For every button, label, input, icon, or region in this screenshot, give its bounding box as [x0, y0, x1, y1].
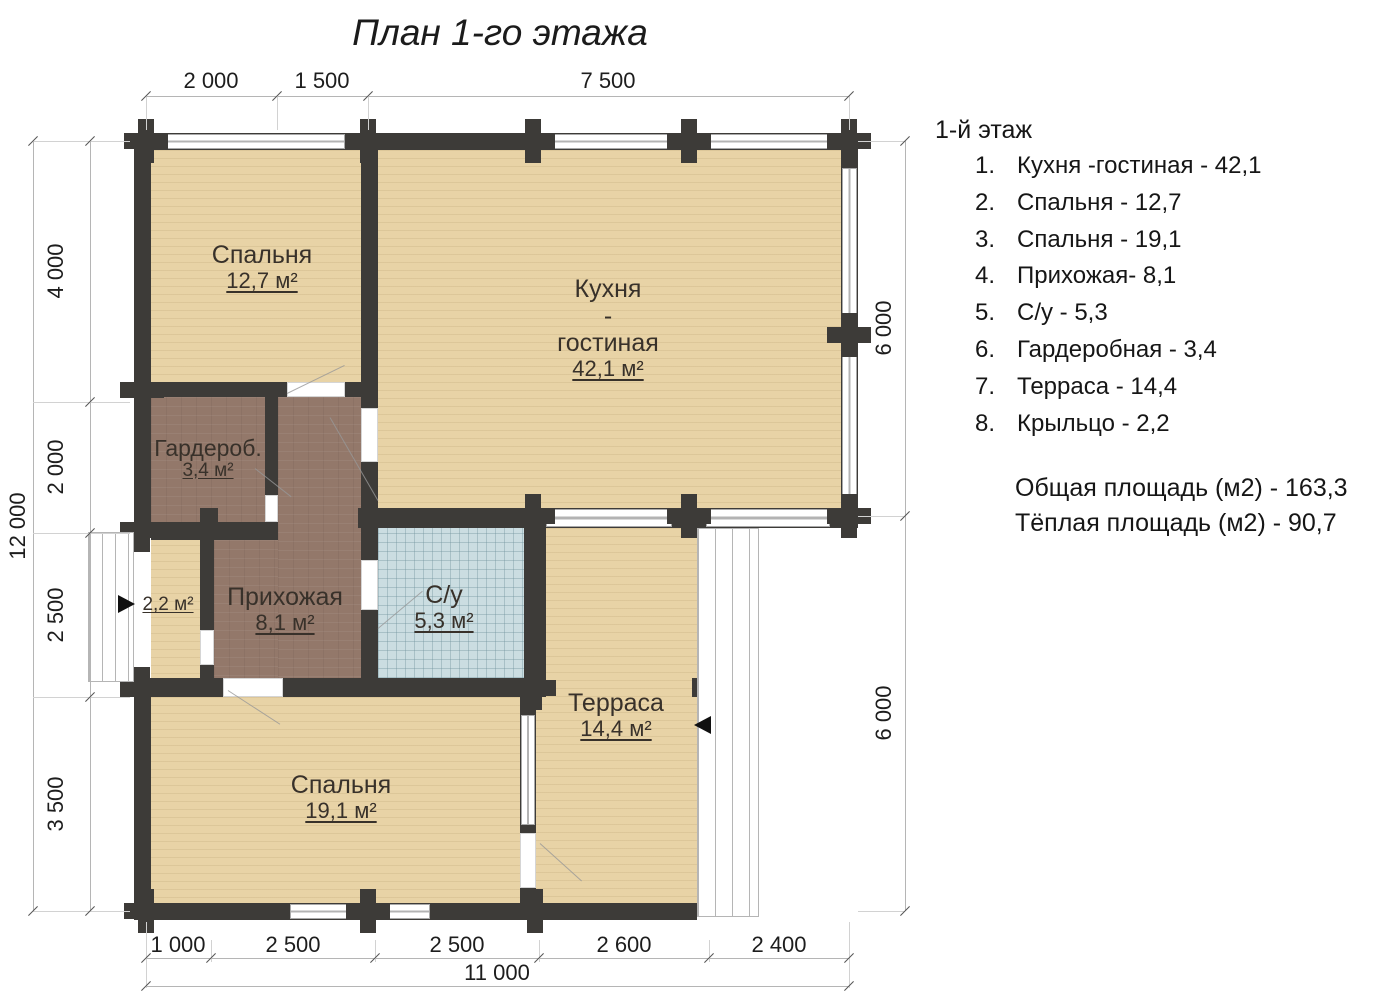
dimension-label: 12 000 — [5, 492, 31, 559]
window-kitchen-terrace-1 — [546, 509, 672, 527]
room-label-bedroom1: Спальня 12,7 м² — [182, 242, 342, 293]
dimension-line — [146, 986, 849, 987]
log-joint-icon — [124, 903, 168, 919]
extension-line — [849, 96, 850, 130]
log-joint-icon — [667, 508, 711, 524]
extension-line — [858, 911, 905, 912]
legend-item-number: 7. — [975, 373, 1001, 401]
legend-item-number: 2. — [975, 189, 1001, 217]
extension-line — [146, 96, 147, 130]
legend-item: 4. Прихожая- 8,1 — [975, 262, 1176, 290]
room-area: 3,4 м² — [128, 461, 288, 482]
window-kitchen-east-1 — [842, 168, 857, 318]
legend-item: 5. С/у - 5,3 — [975, 299, 1108, 327]
wall-post-hall — [200, 508, 218, 540]
floor-plan-sheet: План 1-го этажа — [0, 0, 1391, 1000]
extension-line — [33, 402, 130, 403]
extension-line — [368, 96, 369, 130]
legend-item-number: 6. — [975, 336, 1001, 364]
room-name: Терраса — [536, 690, 696, 717]
room-label-kitchen: Кухня - гостиная 42,1 м² — [528, 276, 688, 381]
legend-item: 2. Спальня - 12,7 — [975, 189, 1181, 217]
room-area: 8,1 м² — [205, 611, 365, 635]
room-name: Спальня — [261, 772, 421, 799]
log-joint-icon — [827, 327, 871, 343]
wall-terrace-post-south — [682, 903, 697, 917]
page-title: План 1-го этажа — [330, 12, 670, 54]
dimension-line — [33, 141, 34, 911]
legend-item-number: 1. — [975, 152, 1001, 180]
room-name: - — [528, 303, 688, 330]
warm-area-text: Тёплая площадь (м2) - 90,7 — [1015, 509, 1337, 538]
door-terrace-bedroom2 — [520, 833, 536, 888]
log-joint-icon — [120, 681, 164, 697]
dimension-label: 2 500 — [429, 932, 484, 958]
room-label-wardrobe: Гардероб. 3,4 м² — [128, 436, 288, 481]
dimension-label: 11 000 — [464, 960, 530, 986]
room-name: Гардероб. — [128, 436, 288, 461]
legend-item-text: Терраса - 14,4 — [1017, 373, 1177, 401]
extension-line — [858, 141, 905, 142]
legend-item-text: Кухня -гостиная - 42,1 — [1017, 152, 1262, 180]
door-porch-hallway — [200, 630, 214, 665]
dimension-label: 2 500 — [43, 587, 69, 642]
legend-item-text: Спальня - 19,1 — [1017, 226, 1181, 254]
room-name: Спальня — [182, 242, 342, 269]
log-joint-icon — [513, 903, 557, 919]
dimension-label: 1 500 — [294, 68, 349, 94]
dimension-label: 6 000 — [871, 685, 897, 740]
extension-line — [33, 697, 130, 698]
log-joint-icon — [120, 382, 164, 398]
log-joint-icon — [346, 133, 390, 149]
legend-item: 8. Крыльцо - 2,2 — [975, 410, 1170, 438]
room-label-terrace: Терраса 14,4 м² — [536, 690, 696, 741]
legend-heading: 1-й этаж — [935, 116, 1032, 145]
room-label-hallway: Прихожая 8,1 м² — [205, 584, 365, 635]
legend-item-text: Крыльцо - 2,2 — [1017, 410, 1170, 438]
extension-line — [211, 940, 212, 962]
legend-item-number: 5. — [975, 299, 1001, 327]
room-area: 2,2 м² — [138, 595, 198, 616]
room-name: С/у — [364, 582, 524, 609]
legend-item-text: Прихожая- 8,1 — [1017, 262, 1176, 290]
legend-item: 6. Гардеробная - 3,4 — [975, 336, 1217, 364]
legend-item-text: Гардеробная - 3,4 — [1017, 336, 1217, 364]
legend-item: 3. Спальня - 19,1 — [975, 226, 1181, 254]
window-kitchen-east-2 — [842, 352, 857, 498]
log-joint-icon — [124, 133, 168, 149]
room-area: 5,3 м² — [364, 609, 524, 633]
window-bedroom2-east — [521, 715, 535, 825]
room-area: 42,1 м² — [528, 357, 688, 381]
legend-item-number: 8. — [975, 410, 1001, 438]
extension-line — [33, 533, 130, 534]
entry-arrow-icon — [694, 716, 711, 734]
dimension-label: 4 000 — [43, 243, 69, 298]
dimension-label: 6 000 — [871, 300, 897, 355]
dimension-label: 2 600 — [596, 932, 651, 958]
door-wardrobe — [265, 495, 278, 522]
wall-kitchen-west — [361, 150, 378, 528]
dimension-label: 7 500 — [580, 68, 635, 94]
extension-line — [33, 141, 130, 142]
room-name: Кухня — [528, 276, 688, 303]
room-area: 12,7 м² — [182, 269, 342, 293]
wall-hallway-south — [134, 678, 546, 697]
dimension-label: 2 400 — [751, 932, 806, 958]
extension-line — [709, 940, 710, 962]
room-label-bedroom2: Спальня 19,1 м² — [261, 772, 421, 823]
room-name: гостиная — [528, 330, 688, 357]
window-kitchen-terrace-2 — [706, 509, 830, 527]
dimension-label: 3 500 — [43, 776, 69, 831]
room-area: 14,4 м² — [536, 717, 696, 741]
log-joint-icon — [511, 508, 555, 524]
legend-item-number: 4. — [975, 262, 1001, 290]
extension-line — [858, 516, 905, 517]
room-name: Прихожая — [205, 584, 365, 611]
extension-line — [375, 940, 376, 962]
dimension-line — [146, 958, 849, 959]
extension-line — [277, 96, 278, 130]
dimension-label: 2 500 — [265, 932, 320, 958]
room-corridor-floor — [278, 397, 361, 678]
total-area-text: Общая площадь (м2) - 163,3 — [1015, 474, 1348, 503]
dimension-label: 2 000 — [183, 68, 238, 94]
log-joint-icon — [346, 903, 390, 919]
dimension-label: 1 000 — [150, 932, 205, 958]
legend-item-number: 3. — [975, 226, 1001, 254]
dimension-line — [905, 141, 906, 911]
dimension-line — [146, 96, 849, 97]
legend-item: 1. Кухня -гостиная - 42,1 — [975, 152, 1262, 180]
dimension-label: 2 000 — [43, 439, 69, 494]
window-kitchen-north-2 — [706, 134, 830, 149]
legend-item-text: С/у - 5,3 — [1017, 299, 1108, 327]
dimension-line — [90, 141, 91, 911]
legend-item-text: Спальня - 12,7 — [1017, 189, 1181, 217]
log-joint-icon — [511, 133, 555, 149]
window-kitchen-north-1 — [548, 134, 672, 149]
entry-arrow-icon — [118, 595, 135, 613]
room-area: 19,1 м² — [261, 799, 421, 823]
room-label-bathroom: С/у 5,3 м² — [364, 582, 524, 633]
window-bedroom1-north — [165, 134, 345, 149]
door-corridor-kitchen — [361, 408, 378, 462]
legend-item: 7. Терраса - 14,4 — [975, 373, 1177, 401]
room-label-porch: 2,2 м² — [138, 595, 198, 616]
log-joint-icon — [667, 133, 711, 149]
extension-line — [539, 940, 540, 962]
extension-line — [33, 911, 130, 912]
